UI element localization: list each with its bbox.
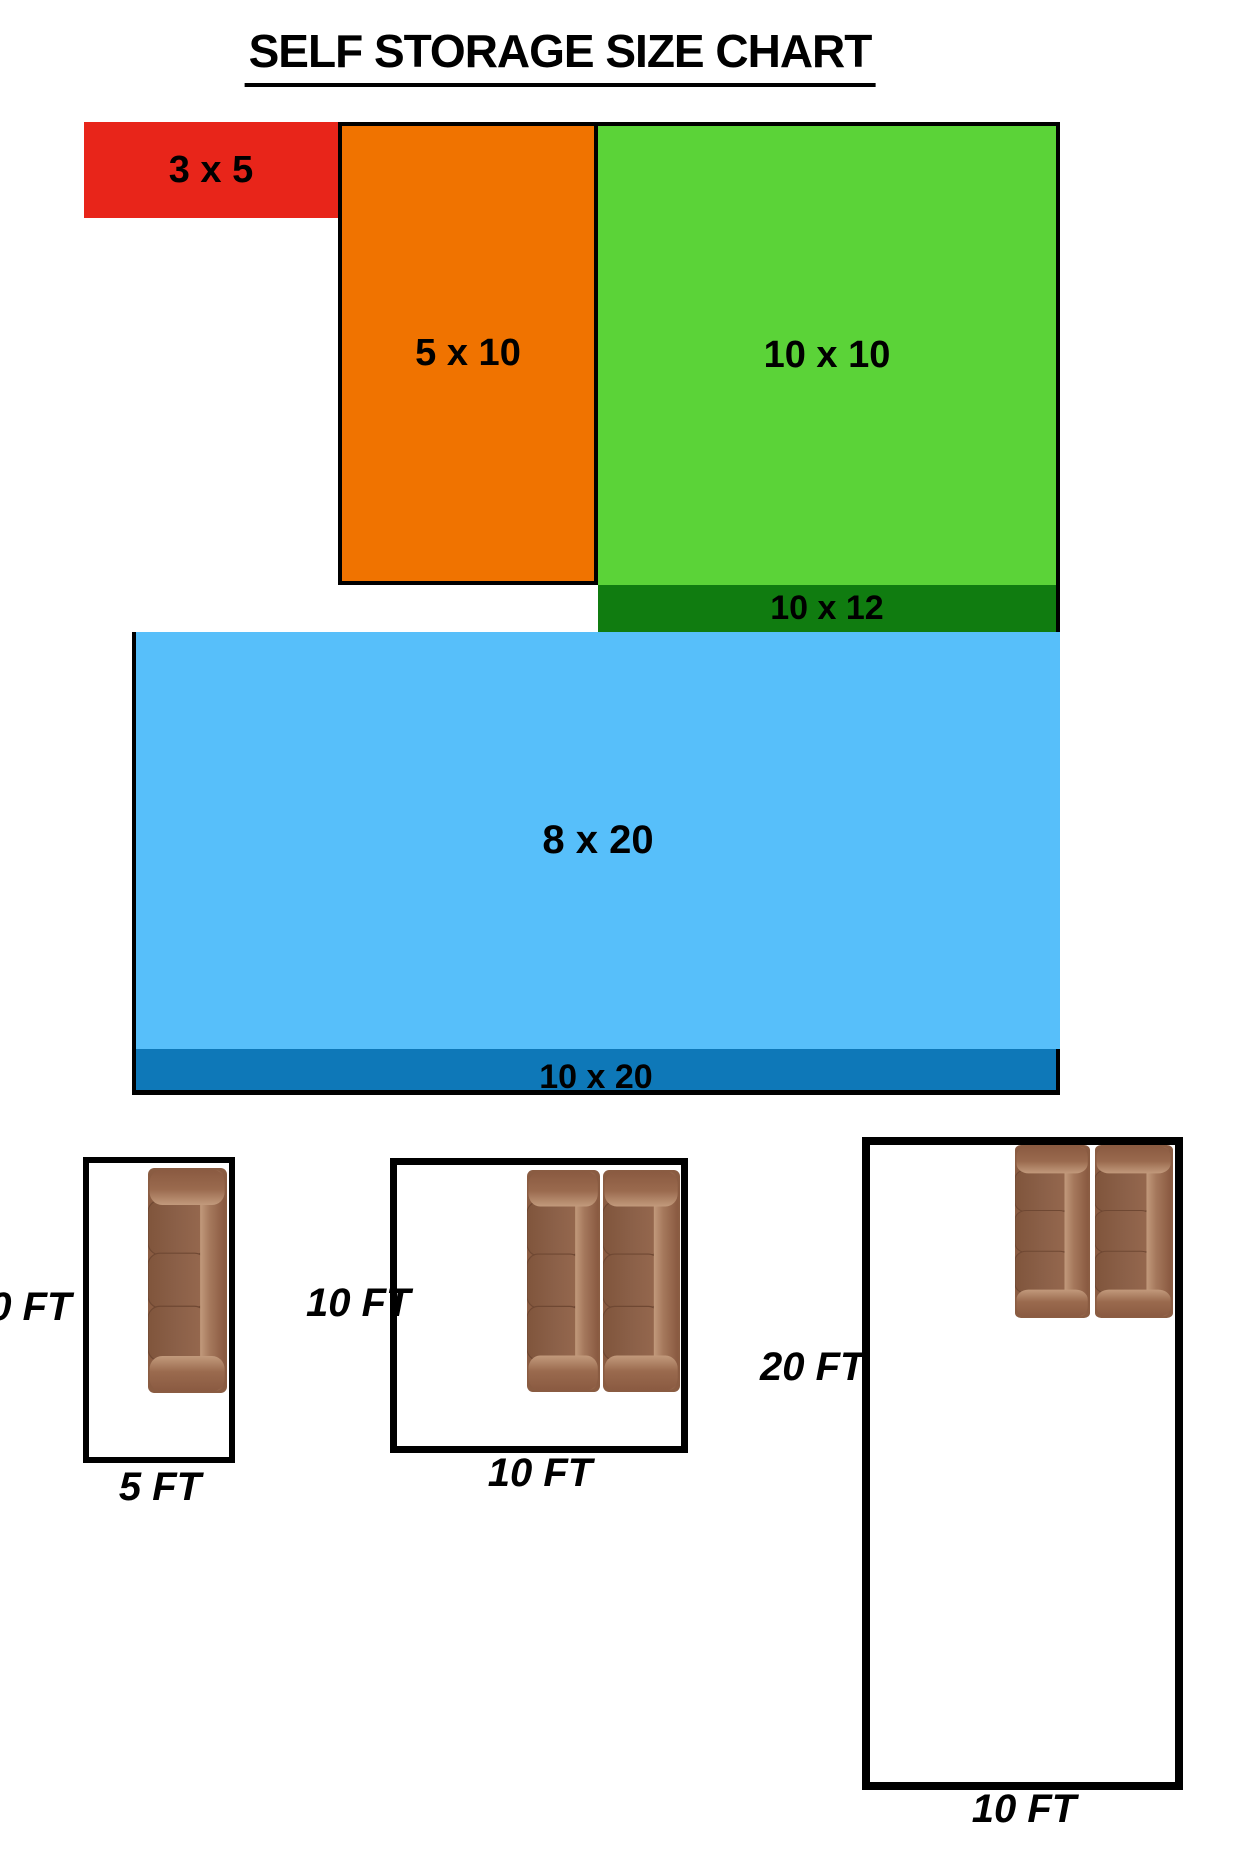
unit-10x20-label: 10 x 20 (539, 1058, 652, 1097)
couch-top-view (527, 1170, 600, 1392)
unit-5x10-label: 5 x 10 (415, 332, 521, 375)
unit-5x10: 5 x 10 (338, 122, 598, 585)
unit-3x5: 3 x 5 (84, 122, 338, 218)
unit-8x20: 8 x 20 (132, 632, 1060, 1049)
room-5x10-width-label: 5 FT (119, 1466, 201, 1508)
room-10x10-height-label: 10 FT (306, 1282, 410, 1324)
couch-top-view (1015, 1145, 1090, 1318)
page-title: SELF STORAGE SIZE CHART (245, 24, 876, 87)
unit-10x20: 10 x 20 (132, 1049, 1060, 1095)
unit-8x20-label: 8 x 20 (542, 818, 653, 863)
room-10x10-outline (390, 1158, 688, 1453)
self-storage-size-chart: SELF STORAGE SIZE CHART 3 x 5 5 x 10 10 … (0, 0, 1240, 1863)
unit-10x10-label: 10 x 10 (764, 334, 891, 377)
room-10x10-width-label: 10 FT (488, 1452, 592, 1494)
room-10x20-height-label: 20 FT (760, 1346, 864, 1388)
unit-10x12: 10 x 12 (598, 585, 1060, 632)
room-10x20-width-label: 10 FT (972, 1788, 1076, 1830)
room-5x10-outline (83, 1157, 235, 1463)
couch-top-view (603, 1170, 680, 1392)
room-5x10-height-label: 10 FT (0, 1286, 71, 1328)
unit-10x12-label: 10 x 12 (770, 589, 883, 628)
room-10x20-outline (862, 1137, 1183, 1790)
couch-top-view (148, 1168, 227, 1393)
unit-3x5-label: 3 x 5 (169, 149, 254, 192)
couch-top-view (1095, 1145, 1173, 1318)
unit-10x10: 10 x 10 (598, 122, 1060, 585)
